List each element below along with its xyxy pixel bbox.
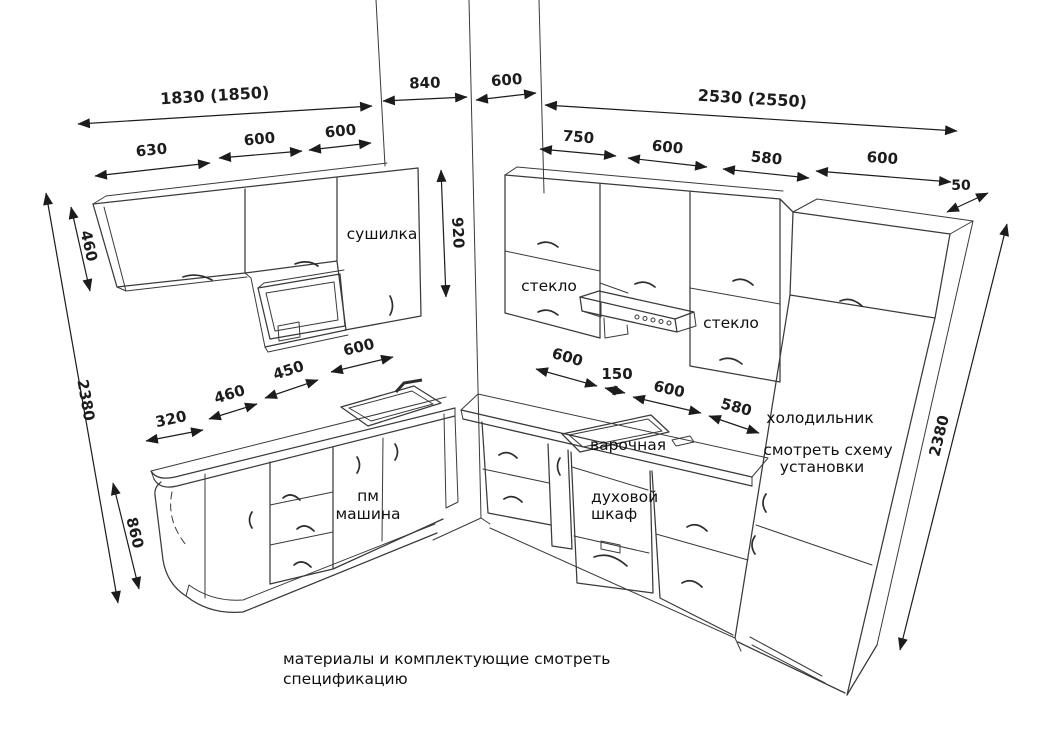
fridge-unit xyxy=(735,295,935,695)
drawing-canvas: 1830 (1850) 630 600 600 840 600 2530 (25… xyxy=(0,0,1037,735)
label-fridge-line3: установки xyxy=(780,458,864,476)
label-fridge-line2: смотреть схему xyxy=(763,441,892,459)
dim-total-right: 2530 (2550) xyxy=(545,86,957,131)
dim-base-right-580: 580 xyxy=(709,394,759,433)
drawer-handle xyxy=(687,525,707,531)
label-dishwasher-line1: пм xyxy=(357,487,379,505)
svg-text:460: 460 xyxy=(77,229,102,264)
cabinet-handle xyxy=(635,282,655,287)
label-dryer: сушилка xyxy=(347,225,418,243)
dim-height-920: 920 xyxy=(441,170,468,297)
svg-text:600: 600 xyxy=(866,148,898,168)
cabinet-handle xyxy=(538,310,558,315)
fridge-handle xyxy=(752,536,755,554)
fridge-handle xyxy=(763,494,766,512)
svg-text:150: 150 xyxy=(601,365,632,383)
drawer-handle xyxy=(504,497,522,502)
dim-base-left-460: 460 xyxy=(209,381,257,419)
dim-height-860: 860 xyxy=(113,483,147,589)
svg-text:600: 600 xyxy=(243,128,276,149)
svg-text:920: 920 xyxy=(448,217,468,249)
label-glass-left: стекло xyxy=(521,277,577,295)
bottle-pullout-handle xyxy=(558,458,561,475)
dim-right-section-750: 750 xyxy=(540,127,616,156)
svg-text:2380: 2380 xyxy=(73,378,98,422)
svg-text:750: 750 xyxy=(562,127,595,148)
label-oven-line2: шкаф xyxy=(591,505,637,523)
dim-right-section-600b: 600 xyxy=(816,148,951,182)
svg-text:1830 (1850): 1830 (1850) xyxy=(160,83,270,109)
dim-wall-gap-840: 840 xyxy=(383,73,467,101)
dim-base-right-600a: 600 xyxy=(536,344,597,386)
dim-right-section-600a: 600 xyxy=(628,136,707,167)
dim-base-left-600: 600 xyxy=(331,335,393,372)
svg-text:600: 600 xyxy=(550,344,585,370)
dishwasher-door-handle xyxy=(357,457,360,473)
note-line2: спецификацию xyxy=(283,670,408,688)
svg-text:2380: 2380 xyxy=(925,413,953,458)
label-dishwasher-line2: машина xyxy=(335,505,400,523)
svg-text:320: 320 xyxy=(154,407,188,431)
dim-base-left-320: 320 xyxy=(146,407,203,441)
left-base-cabinets xyxy=(151,380,458,612)
svg-text:580: 580 xyxy=(719,394,754,419)
svg-text:2530 (2550): 2530 (2550) xyxy=(697,86,807,112)
label-fridge-line1: холодильник xyxy=(766,409,873,427)
svg-text:600: 600 xyxy=(652,377,687,402)
dimensions: 1830 (1850) 630 600 600 840 600 2530 (25… xyxy=(46,70,1007,650)
dim-height-2380-right: 2380 xyxy=(900,224,1007,650)
svg-text:840: 840 xyxy=(409,73,441,92)
dim-wall-gap-600: 600 xyxy=(476,70,536,100)
drawer-handle xyxy=(682,581,702,587)
cabinet-handle xyxy=(538,242,558,247)
dim-left-section-600b: 600 xyxy=(309,120,371,150)
kitchen-technical-drawing: 1830 (1850) 630 600 600 840 600 2530 (25… xyxy=(0,0,1037,735)
note-line1: материалы и комплектующие смотреть xyxy=(283,650,610,668)
svg-text:600: 600 xyxy=(651,136,684,157)
dishwasher-door-handle xyxy=(395,444,398,460)
svg-text:450: 450 xyxy=(271,357,306,384)
cabinet-handle xyxy=(733,279,753,285)
dim-base-left-450: 450 xyxy=(265,357,318,398)
svg-text:600: 600 xyxy=(324,120,357,141)
svg-text:600: 600 xyxy=(341,335,376,360)
label-glass-right: стекло xyxy=(703,314,759,332)
svg-text:50: 50 xyxy=(951,178,971,194)
label-hob: варочная xyxy=(590,436,666,454)
dim-left-section-600a: 600 xyxy=(219,128,302,158)
dim-overhang-50: 50 xyxy=(947,178,988,212)
dim-left-section-630: 630 xyxy=(95,139,210,176)
dim-height-460: 460 xyxy=(71,207,101,291)
svg-text:580: 580 xyxy=(750,147,783,168)
label-oven-line1: духовой xyxy=(591,488,658,506)
dim-right-section-580: 580 xyxy=(723,147,809,178)
microwave xyxy=(258,270,345,341)
spec-note: материалы и комплектующие смотреть специ… xyxy=(283,650,610,688)
oven-door-handle xyxy=(594,555,627,566)
cabinet-handle xyxy=(720,358,742,364)
left-wall-cabinets xyxy=(93,163,421,352)
svg-text:600: 600 xyxy=(490,70,522,90)
svg-text:860: 860 xyxy=(122,515,147,550)
dryer-cabinet-handle xyxy=(390,296,393,315)
svg-text:630: 630 xyxy=(135,139,168,160)
dim-base-right-150: 150 xyxy=(601,365,632,393)
cooker-hood xyxy=(580,291,696,338)
drawer-handle xyxy=(297,526,314,531)
svg-text:460: 460 xyxy=(212,381,247,407)
dim-base-right-600b: 600 xyxy=(633,377,701,413)
drawer-handle xyxy=(294,562,311,567)
drawer-handle xyxy=(499,453,517,458)
base-door-handle xyxy=(250,512,253,528)
dim-total-left: 1830 (1850) xyxy=(78,83,372,124)
